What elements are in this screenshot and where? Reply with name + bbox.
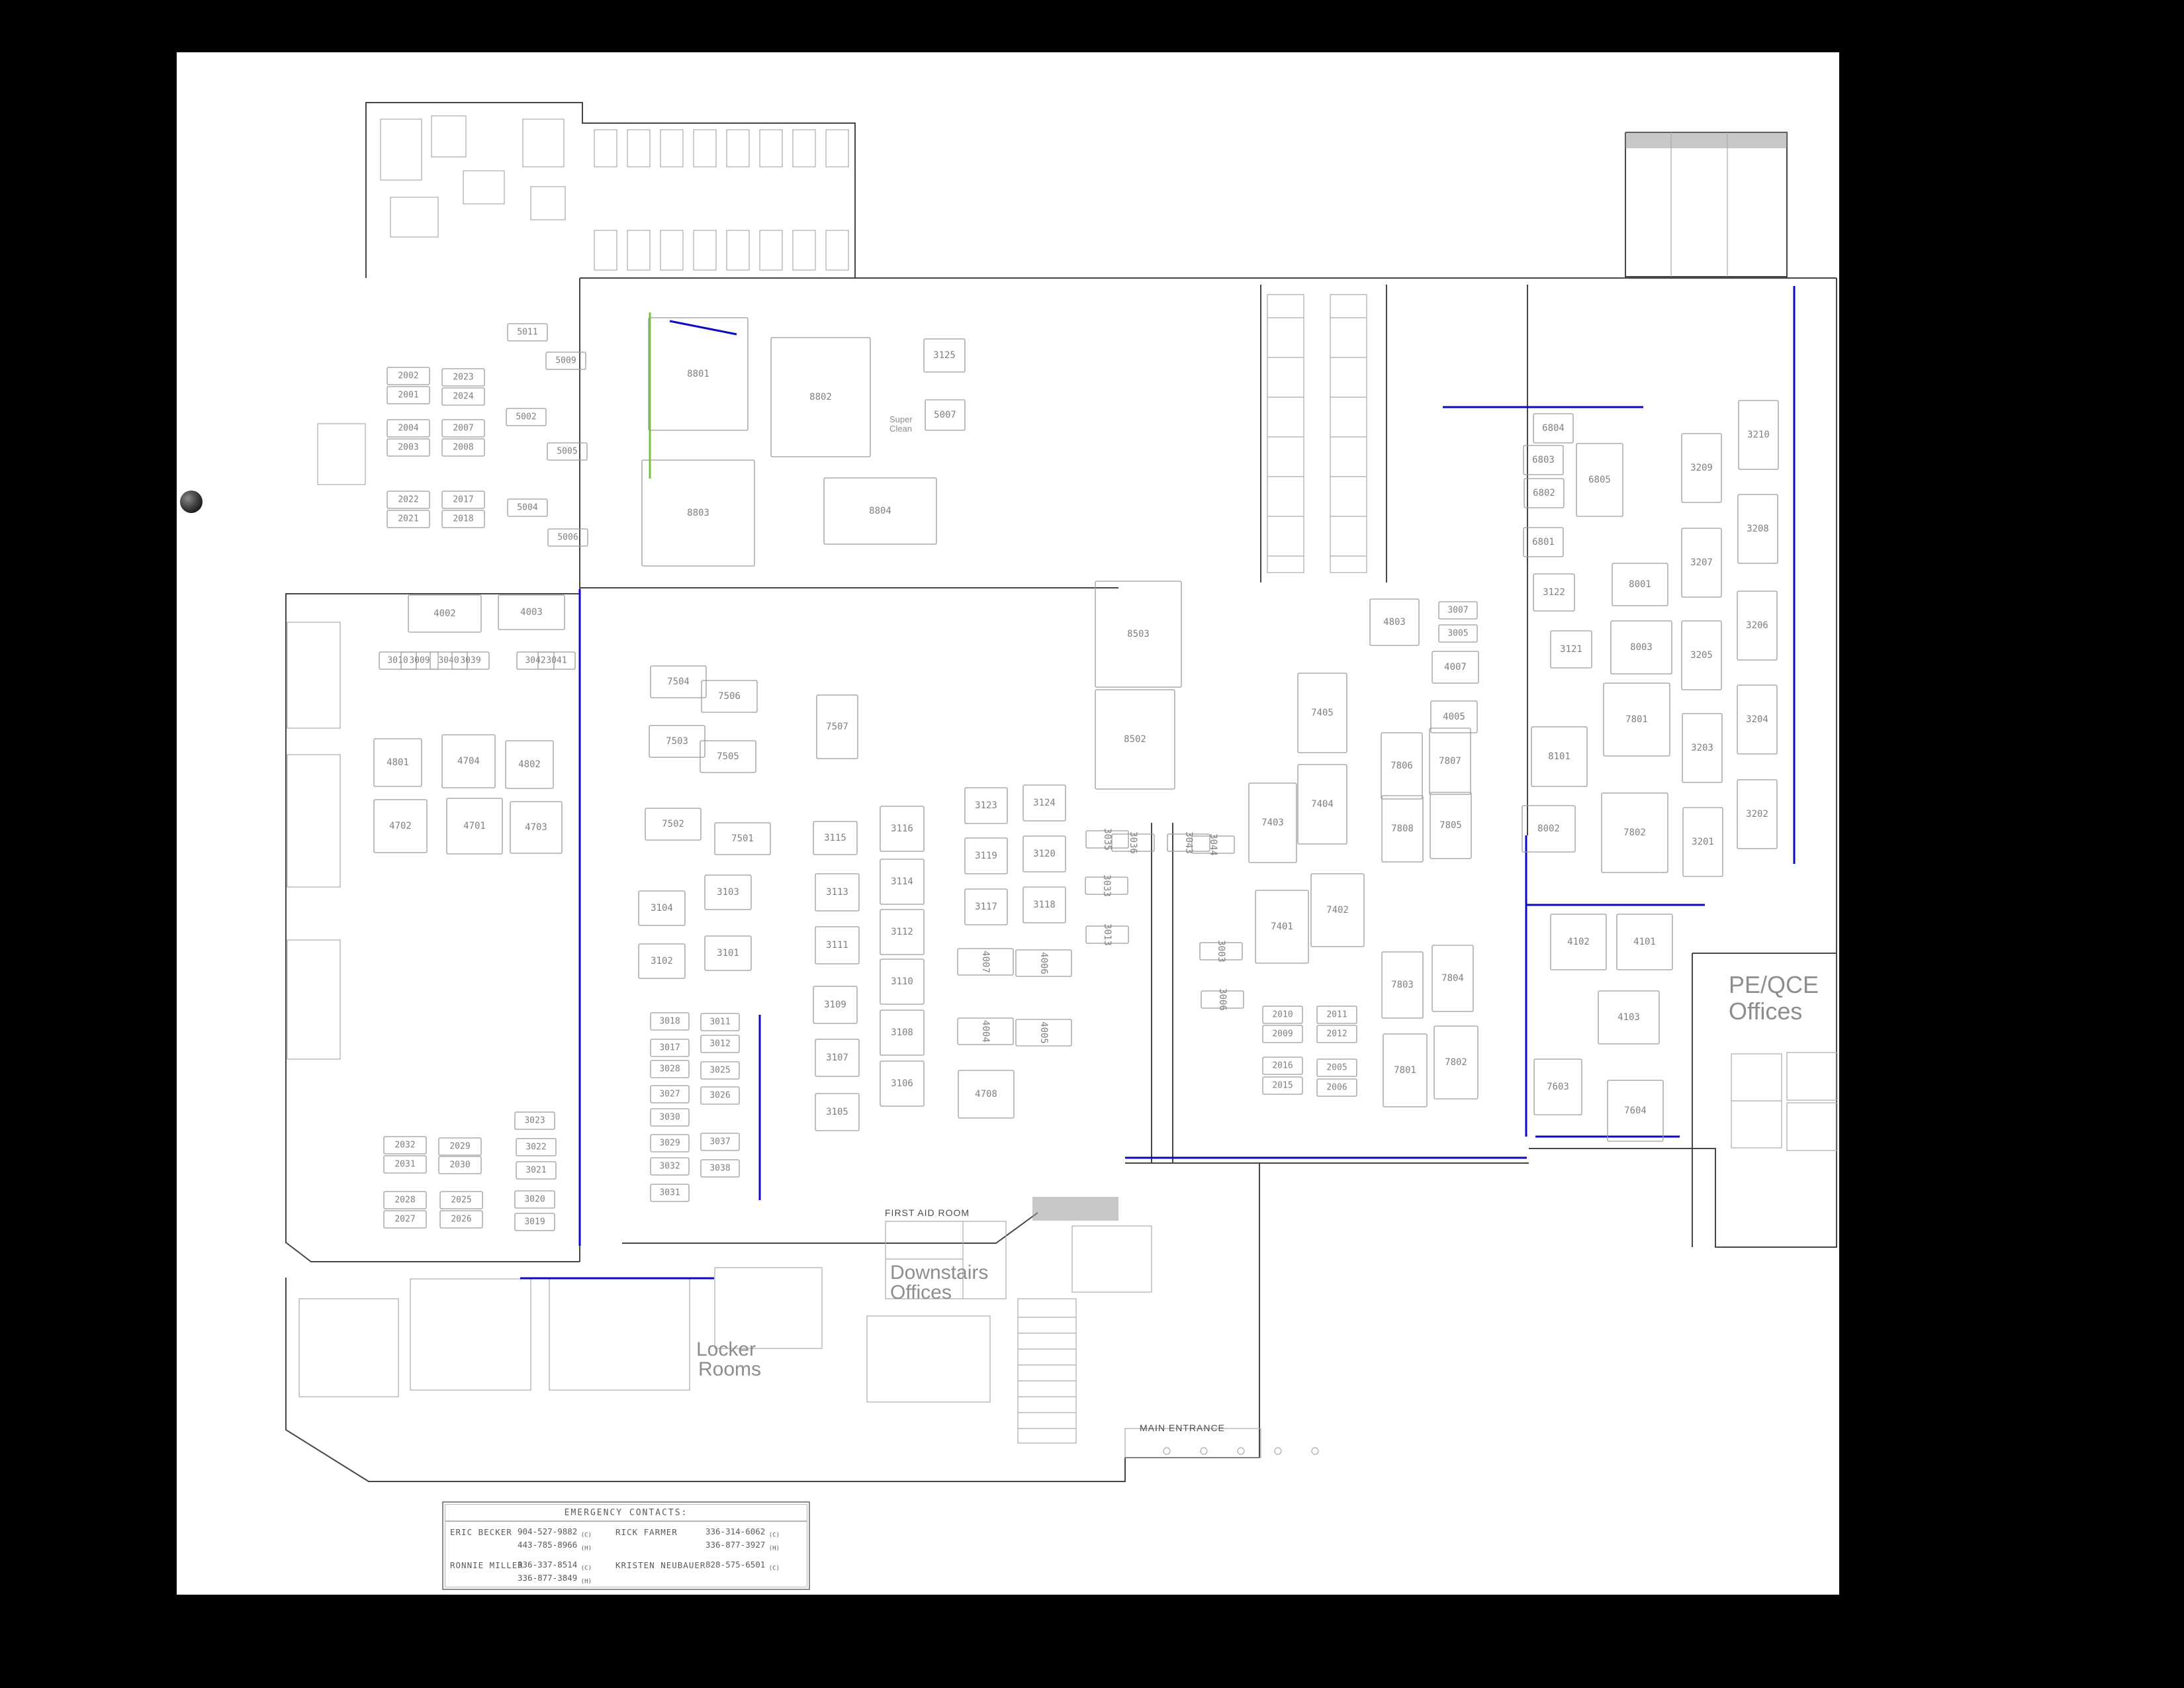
room-number: 6804 [1542,423,1565,434]
furniture-outline [727,130,749,167]
room: 7804 [1432,945,1473,1011]
room: 3005 [1439,625,1477,642]
room: 3018 [651,1013,689,1030]
furniture-outline [390,197,438,237]
furniture-outline [793,230,815,270]
room: 3118 [1023,887,1066,923]
room-number: 3107 [826,1053,848,1063]
room-number: 4704 [457,756,480,767]
room: 3038 [701,1160,739,1177]
room-number: 3103 [717,887,739,898]
room-number: 4801 [387,757,409,768]
contact-phone: 336-877-3849 (H) [518,1573,615,1587]
room-number: 4101 [1633,937,1656,947]
room-number: 7603 [1547,1082,1569,1092]
room-number: 3026 [709,1091,730,1101]
room: 4006 [1016,950,1071,976]
room-number: 2024 [453,392,473,402]
room: 8802 [771,338,870,457]
room-number: 5007 [934,410,956,420]
room: 4003 [498,595,565,630]
room: 3110 [880,959,924,1004]
area-label: Super [889,414,913,424]
room-number: 8502 [1124,734,1146,745]
contact-phone: 336-877-3927 (H) [705,1540,805,1554]
room: 5005 [547,443,587,460]
room: 3025 [701,1062,739,1079]
room-number: 7807 [1439,756,1461,767]
room: 3115 [813,821,857,855]
room: 3037 [701,1133,739,1150]
room-number: 3105 [826,1107,848,1117]
room: 7403 [1249,783,1297,863]
room-number: 3101 [717,948,739,959]
area-label: PE/QCE [1729,971,1819,998]
room: 7506 [702,680,757,712]
area-label: Offices [890,1282,952,1303]
room: 4802 [506,741,553,788]
room-number: 7403 [1261,818,1284,828]
room: 3203 [1682,714,1722,782]
contact-phone: 828-575-6501 (C) [705,1560,805,1573]
room: 2010 [1263,1006,1302,1023]
room: 2012 [1317,1025,1357,1043]
door-circle [1238,1448,1244,1454]
room-number: 3207 [1690,557,1713,568]
furniture-outline [826,230,848,270]
room: 4701 [447,798,502,854]
room-number: 2030 [449,1160,470,1170]
room: 2032 [384,1137,426,1154]
furniture-outline [760,130,782,167]
room: 7806 [1381,733,1422,799]
area-label: Locker [696,1338,756,1360]
room-number: 4004 [980,1020,991,1043]
room: 3105 [815,1094,859,1131]
contact-name: RICK FARMER [615,1527,705,1553]
room: 3043 [1167,831,1210,854]
hatch-block [1625,132,1787,148]
room: 4103 [1598,991,1659,1044]
room-number: 3208 [1747,524,1769,534]
room: 2008 [442,439,484,456]
room-number: 7806 [1390,761,1413,771]
room-number: 7501 [731,833,754,844]
wall-line [1625,132,1787,277]
room: 6802 [1524,479,1564,508]
room-number: 3111 [826,940,848,951]
furniture-outline [287,940,340,1059]
room-number: 4003 [520,607,543,618]
door-circle [1163,1448,1170,1454]
room: 4005 [1016,1019,1071,1046]
room-number: 3013 [1102,923,1113,946]
contact-phone: 904-527-9882 (C) [518,1527,615,1540]
contact-phones: 336-314-6062 (C)336-877-3927 (H) [705,1527,805,1553]
room: 3106 [880,1061,924,1106]
room: 3109 [813,986,857,1023]
room: 3102 [639,944,685,978]
room-number: 3104 [651,903,673,914]
room-number: 3037 [709,1137,730,1147]
contact-phone: 336-337-8514 (C) [518,1560,615,1573]
room-number: 8803 [687,508,709,518]
room-number: 7801 [1625,714,1648,725]
furniture-outline [660,230,683,270]
room: 2007 [442,420,484,437]
room-number: 8503 [1127,629,1150,639]
hatch-block [1032,1197,1118,1221]
room-number: 3102 [651,956,673,966]
room-number: 7802 [1623,827,1646,838]
room: 2004 [387,420,430,437]
room: 3114 [880,859,924,904]
room-number: 7804 [1441,973,1464,984]
contact-phones: 904-527-9882 (C)443-785-8966 (H) [518,1527,615,1553]
room-number: 2029 [449,1142,470,1152]
room: 7802 [1434,1026,1478,1099]
room-number: 2004 [398,424,418,434]
room: 6804 [1533,414,1573,443]
floor-plan-page: 2002200120042003202220212023202420072008… [177,52,1839,1595]
room-number: 3109 [824,1000,846,1010]
furniture-outline [463,171,504,204]
room-number: 6801 [1532,537,1555,547]
room-number: 3203 [1691,743,1713,753]
room: 3123 [965,788,1007,823]
room-number: 3115 [824,833,846,843]
sphere-marker [180,491,203,513]
room: 3020 [515,1191,555,1208]
door-circle [1275,1448,1281,1454]
room-number: 3028 [659,1064,680,1074]
room-number: 5004 [517,503,537,513]
room-number: 8801 [687,369,709,379]
room: 3011 [701,1013,739,1031]
room: 3204 [1737,685,1777,754]
room-number: 3005 [1447,629,1468,639]
room-number: 2025 [451,1196,471,1205]
room-number: 2028 [394,1196,415,1205]
room-number: 2011 [1326,1010,1347,1020]
room-number: 7801 [1394,1065,1416,1076]
room: 4704 [442,735,495,788]
room: 3022 [516,1139,556,1156]
room-number: 3116 [891,823,913,834]
room-number: 5002 [516,412,536,422]
room-number: 2015 [1272,1081,1293,1091]
room: 2003 [387,439,430,456]
room-number: 3210 [1747,430,1770,440]
room: 8002 [1522,806,1575,852]
room: 6803 [1524,445,1563,475]
furniture-outline [627,230,650,270]
room: 7603 [1534,1059,1582,1115]
room: 3044 [1192,833,1234,856]
blue-accent-line [670,321,737,334]
room-number: 7507 [826,722,848,732]
room: 7802 [1602,793,1668,872]
room-number: 3006 [1217,988,1228,1011]
room: 3209 [1682,434,1721,502]
room-number: 3003 [1216,940,1226,962]
room: 5002 [506,408,546,426]
room-number: 3118 [1033,900,1056,910]
room-number: 5005 [557,447,577,457]
room-number: 3114 [891,876,913,887]
room-number: 3011 [709,1017,730,1027]
room: 3012 [701,1035,739,1053]
room: 4002 [408,595,481,632]
room-number: 3036 [1128,831,1138,854]
room-number: 4803 [1383,617,1406,628]
room-number: 2023 [453,373,473,383]
room-number: 2017 [453,495,473,505]
room-number: 2005 [1326,1063,1347,1073]
furniture-outline [318,424,365,485]
room-number: 3030 [659,1113,680,1123]
viewer-canvas: 2002200120042003202220212023202420072008… [0,0,2184,1688]
furniture-outline [793,130,815,167]
room: 3035 [1086,828,1128,851]
room-number: 7802 [1445,1057,1467,1068]
room: 3026 [701,1087,739,1104]
furniture-outline [1267,295,1304,573]
room-number: 3009 [409,656,430,666]
room: 7507 [817,695,858,759]
room: 3113 [815,874,859,911]
room: 2006 [1317,1079,1357,1096]
room: 3103 [705,875,751,910]
room-number: 4702 [389,821,412,831]
room: 3111 [815,927,859,964]
room-number: 7402 [1326,905,1349,915]
room-number: 2022 [398,495,418,505]
contact-row: RONNIE MILLER336-337-8514 (C)336-877-384… [450,1560,805,1586]
room-number: 4007 [1444,662,1467,673]
room: 7505 [700,741,756,773]
room: 2024 [442,388,484,405]
furniture-outline [549,1279,690,1390]
room-number: 8101 [1548,751,1570,762]
room: 4708 [958,1070,1014,1118]
room: 3033 [1085,874,1128,897]
furniture-outline [1787,1053,1837,1100]
room: 4702 [374,800,427,853]
room-number: 3202 [1746,809,1768,820]
room: 4803 [1370,599,1419,645]
room: 8003 [1611,621,1672,674]
room: 2025 [440,1192,482,1209]
furniture-outline [867,1316,990,1402]
room-number: 2008 [453,443,473,453]
room: 3112 [880,910,924,955]
room: 3116 [880,806,924,851]
room-number: 7803 [1391,980,1414,990]
room: 3119 [965,838,1007,874]
room-number: 7808 [1391,823,1414,834]
room-number: 8804 [869,506,891,516]
room-number: 6802 [1533,488,1555,498]
room: 7502 [645,808,701,840]
room-number: 3110 [891,976,913,987]
room: 5007 [925,400,965,430]
room-number: 7604 [1624,1105,1647,1116]
contact-name: KRISTEN NEUBAUER [615,1560,705,1586]
room-number: 7404 [1311,799,1334,810]
room-number: 3039 [460,656,480,666]
room-number: 5011 [517,328,537,338]
door-circle [1201,1448,1207,1454]
room-number: 8002 [1537,823,1560,834]
furniture-outline [594,230,617,270]
room: 7402 [1311,874,1364,947]
room: 5011 [508,324,547,341]
furniture-outline [627,130,650,167]
room-number: 3023 [524,1116,545,1126]
room: 3117 [965,889,1007,925]
room-number: 3108 [891,1027,913,1038]
room: 2023 [442,369,484,386]
room: 2031 [384,1156,426,1173]
room-number: 3020 [524,1195,545,1205]
room: 8503 [1095,581,1181,687]
room-number: 3012 [709,1039,730,1049]
room-number: 3022 [525,1143,546,1152]
room: 3006 [1201,988,1244,1011]
furniture-outline [523,119,564,167]
room-number: 4005 [1443,712,1465,722]
room: 3003 [1200,940,1242,962]
room: 7503 [649,726,705,757]
furniture-outline [715,1268,822,1348]
room: 4801 [374,739,422,786]
room: 2027 [384,1211,426,1228]
room-number: 3040 [438,656,459,666]
room-number: 7805 [1439,820,1462,831]
room: 8801 [649,318,748,430]
room: 4007 [1432,651,1479,683]
emergency-contacts-table: EMERGENCY CONTACTS: ERIC BECKER904-527-9… [442,1501,810,1590]
room-number: 3204 [1746,714,1768,725]
furniture-outline [299,1299,398,1397]
room-number: 3120 [1033,849,1056,859]
room: 7807 [1430,728,1471,794]
room: 7803 [1382,952,1423,1018]
area-label: MAIN ENTRANCE [1140,1423,1225,1433]
room: 3208 [1738,494,1778,563]
room-number: 3117 [975,902,997,912]
room: 3121 [1551,631,1592,668]
room: 2011 [1317,1006,1357,1023]
room-number: 3025 [709,1066,730,1076]
room: 3031 [651,1184,689,1201]
room-number: 2027 [394,1215,415,1225]
room: 2005 [1317,1059,1357,1076]
room: 2001 [387,387,430,404]
furniture-outline [594,130,617,167]
room-number: 3121 [1560,644,1582,655]
room-number: 7506 [718,691,741,702]
room-number: 3017 [659,1043,680,1053]
room-number: 3112 [891,927,913,937]
room-number: 4802 [518,759,541,770]
room: 7405 [1298,673,1347,753]
room-number: 5006 [557,533,578,543]
room: 3210 [1739,400,1778,469]
area-label: FIRST AID ROOM [885,1207,970,1218]
room-number: 2009 [1272,1029,1293,1039]
furniture-outline [826,130,848,167]
room-number: 4103 [1617,1012,1640,1023]
room: 2018 [442,510,484,528]
room: 7801 [1604,683,1670,756]
room-number: 3123 [975,800,997,811]
room: 8001 [1612,563,1668,606]
furniture-outline [694,130,716,167]
room-number: 8001 [1629,579,1651,590]
room: 8502 [1095,690,1175,789]
room: 2029 [439,1138,481,1155]
room-number: 2032 [394,1141,415,1150]
contact-name: RONNIE MILLER [450,1560,518,1586]
room-number: 2021 [398,514,418,524]
area-label: Clean [889,424,912,434]
furniture-outline [1787,1103,1837,1150]
room: 6805 [1576,444,1623,516]
room: 3101 [705,936,751,970]
room-number: 3041 [546,656,567,666]
room: 2016 [1263,1057,1302,1074]
contact-name: ERIC BECKER [450,1527,518,1553]
room-number: 4102 [1567,937,1590,947]
area-label: Downstairs [890,1262,988,1284]
room: 3032 [651,1158,689,1175]
room: 3007 [1439,602,1477,619]
room: 2026 [440,1211,482,1228]
room-number: 2031 [394,1160,415,1170]
room: 2017 [442,491,484,508]
room: 5006 [548,529,588,546]
room: 4007 [958,949,1013,975]
room: 3027 [651,1086,689,1103]
room-number: 7502 [662,819,684,829]
room: 3104 [639,891,685,925]
room-number: 2006 [1326,1083,1347,1093]
room: 4102 [1551,914,1606,970]
room-number: 2002 [398,371,418,381]
room-number: 2001 [398,391,418,400]
room: 3021 [516,1162,556,1179]
room-number: 7401 [1271,921,1293,932]
furniture-outline [694,230,716,270]
room-number: 3044 [1208,833,1218,856]
room: 3108 [880,1010,924,1055]
furniture-outline [1018,1299,1076,1443]
wall-line [366,103,855,278]
room: 3013 [1086,923,1128,946]
floor-plan: 2002200120042003202220212023202420072008… [177,52,1839,1595]
furniture-outline [531,187,565,220]
room-number: 4703 [525,822,547,833]
room-number: 2010 [1272,1010,1293,1020]
room: 3023 [515,1112,555,1129]
room: 3019 [515,1213,555,1231]
room-number: 4002 [433,608,456,619]
contact-phones: 336-337-8514 (C)336-877-3849 (H) [518,1560,615,1586]
furniture-outline [1072,1226,1152,1292]
room: 7604 [1608,1080,1663,1141]
